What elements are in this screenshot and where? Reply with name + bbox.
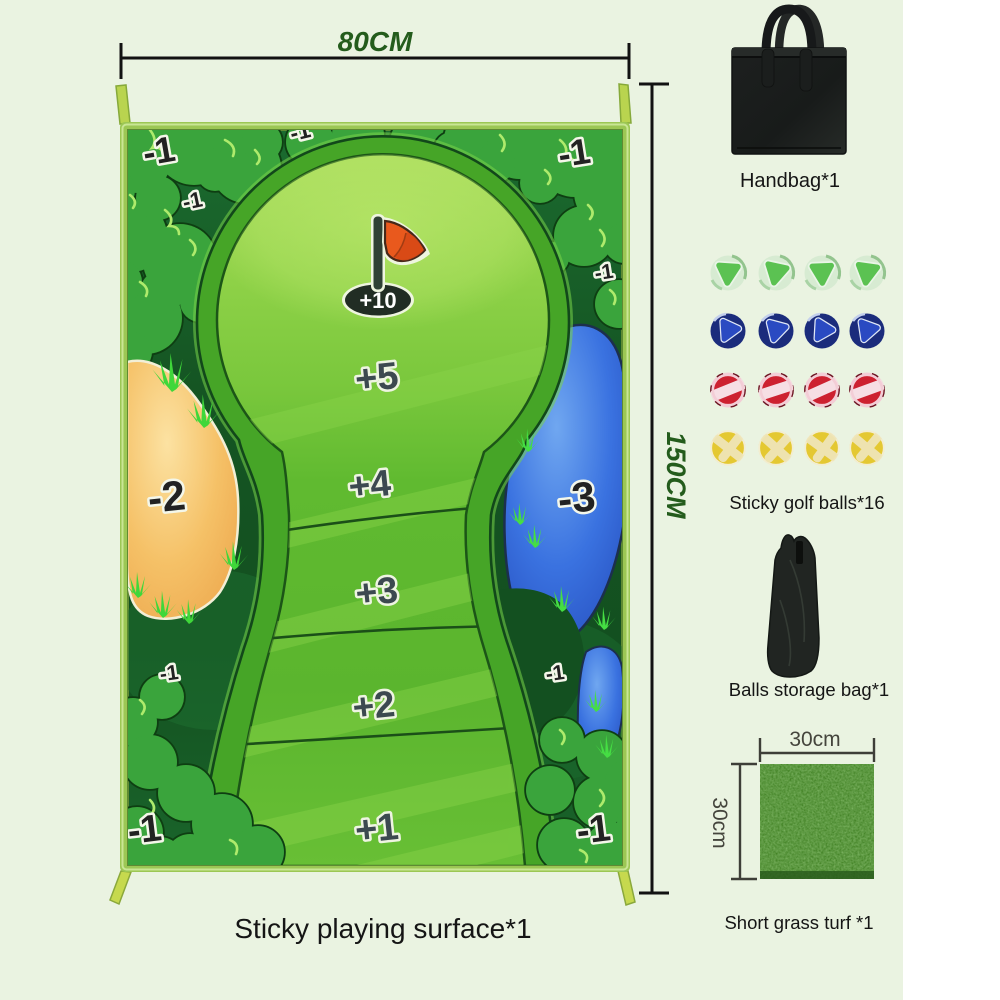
svg-text:-1: -1 [125,807,164,853]
svg-text:+5: +5 [353,355,400,401]
svg-text:80CM: 80CM [338,26,413,57]
svg-text:-1: -1 [593,260,615,286]
svg-text:Sticky golf balls*16: Sticky golf balls*16 [729,492,884,513]
svg-text:Handbag*1: Handbag*1 [740,170,840,192]
svg-text:+2: +2 [351,683,397,728]
svg-text:-2: -2 [145,471,187,522]
svg-text:-1: -1 [574,807,613,853]
svg-text:+10: +10 [359,288,396,313]
svg-text:+3: +3 [354,569,400,614]
svg-text:Balls storage bag*1: Balls storage bag*1 [729,679,889,700]
svg-text:Sticky playing surface*1: Sticky playing surface*1 [234,913,531,944]
svg-text:+1: +1 [353,806,400,852]
svg-text:150CM: 150CM [661,431,691,519]
svg-text:Short grass turf *1: Short grass turf *1 [724,912,873,933]
svg-text:-1: -1 [544,661,566,686]
svg-text:-1: -1 [158,661,180,686]
svg-text:30cm: 30cm [789,728,840,751]
svg-text:-3: -3 [555,472,597,523]
svg-text:30cm: 30cm [708,797,731,848]
svg-text:+4: +4 [347,462,394,507]
svg-text:-1: -1 [555,130,593,176]
